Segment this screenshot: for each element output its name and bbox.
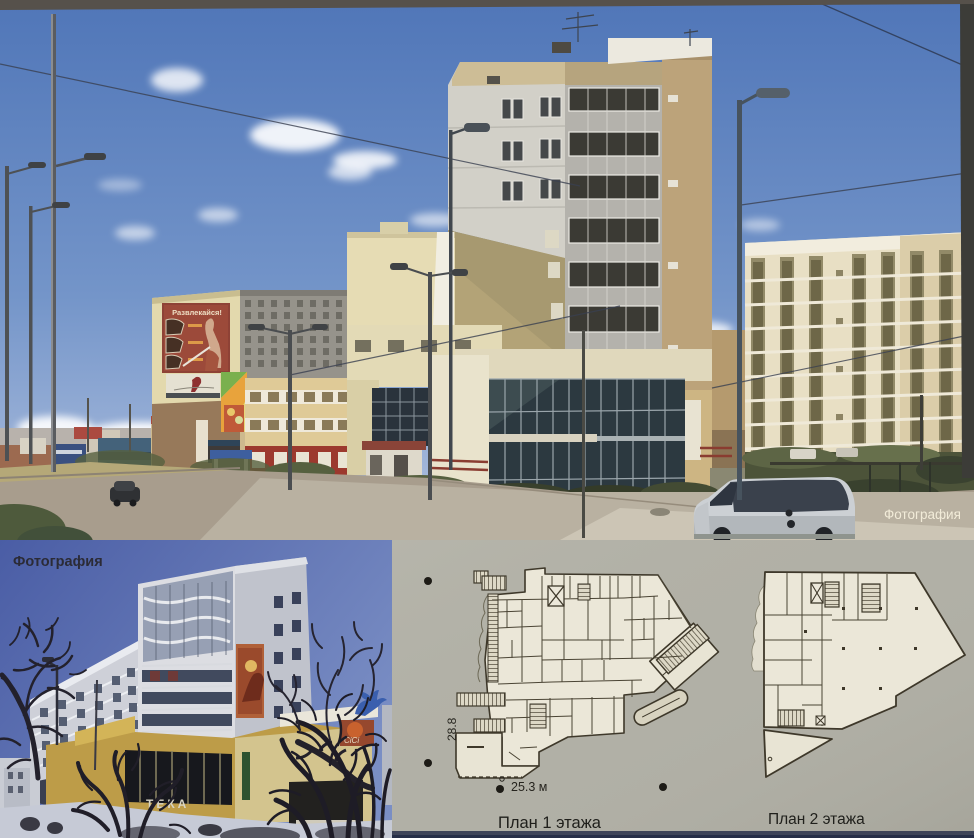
svg-text:28.8: 28.8 [445,717,459,741]
svg-text:Фотография: Фотография [13,554,103,570]
svg-text:Развлекайся!: Развлекайся! [172,308,222,317]
svg-text:План 2 этажа: План 2 этажа [768,811,865,828]
svg-text:25.3 м: 25.3 м [511,780,547,794]
svg-text:План 1 этажа: План 1 этажа [498,814,602,832]
svg-text:Фотография: Фотография [884,507,961,522]
